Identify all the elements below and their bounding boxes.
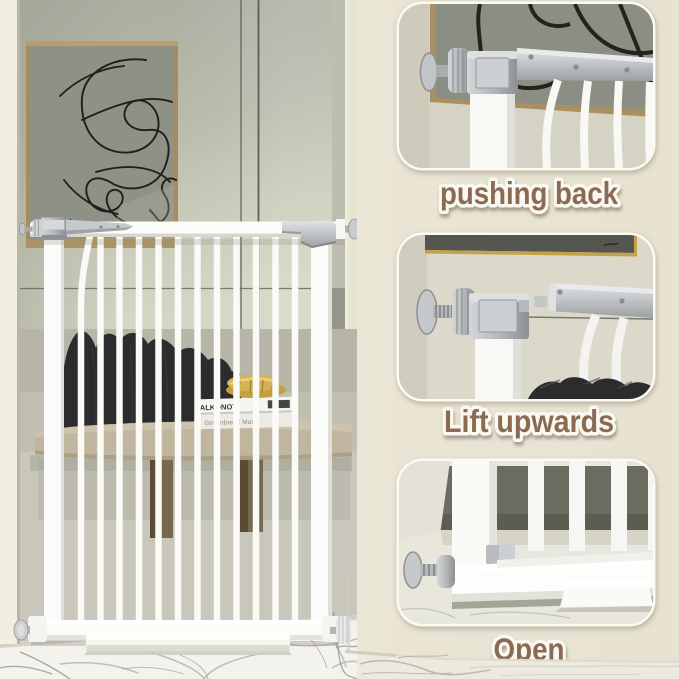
- svg-text:Gingerbread Muse: Gingerbread Muse: [204, 419, 258, 427]
- svg-text:pushing back: pushing back: [440, 175, 618, 211]
- svg-text:Lift upwards: Lift upwards: [444, 403, 614, 439]
